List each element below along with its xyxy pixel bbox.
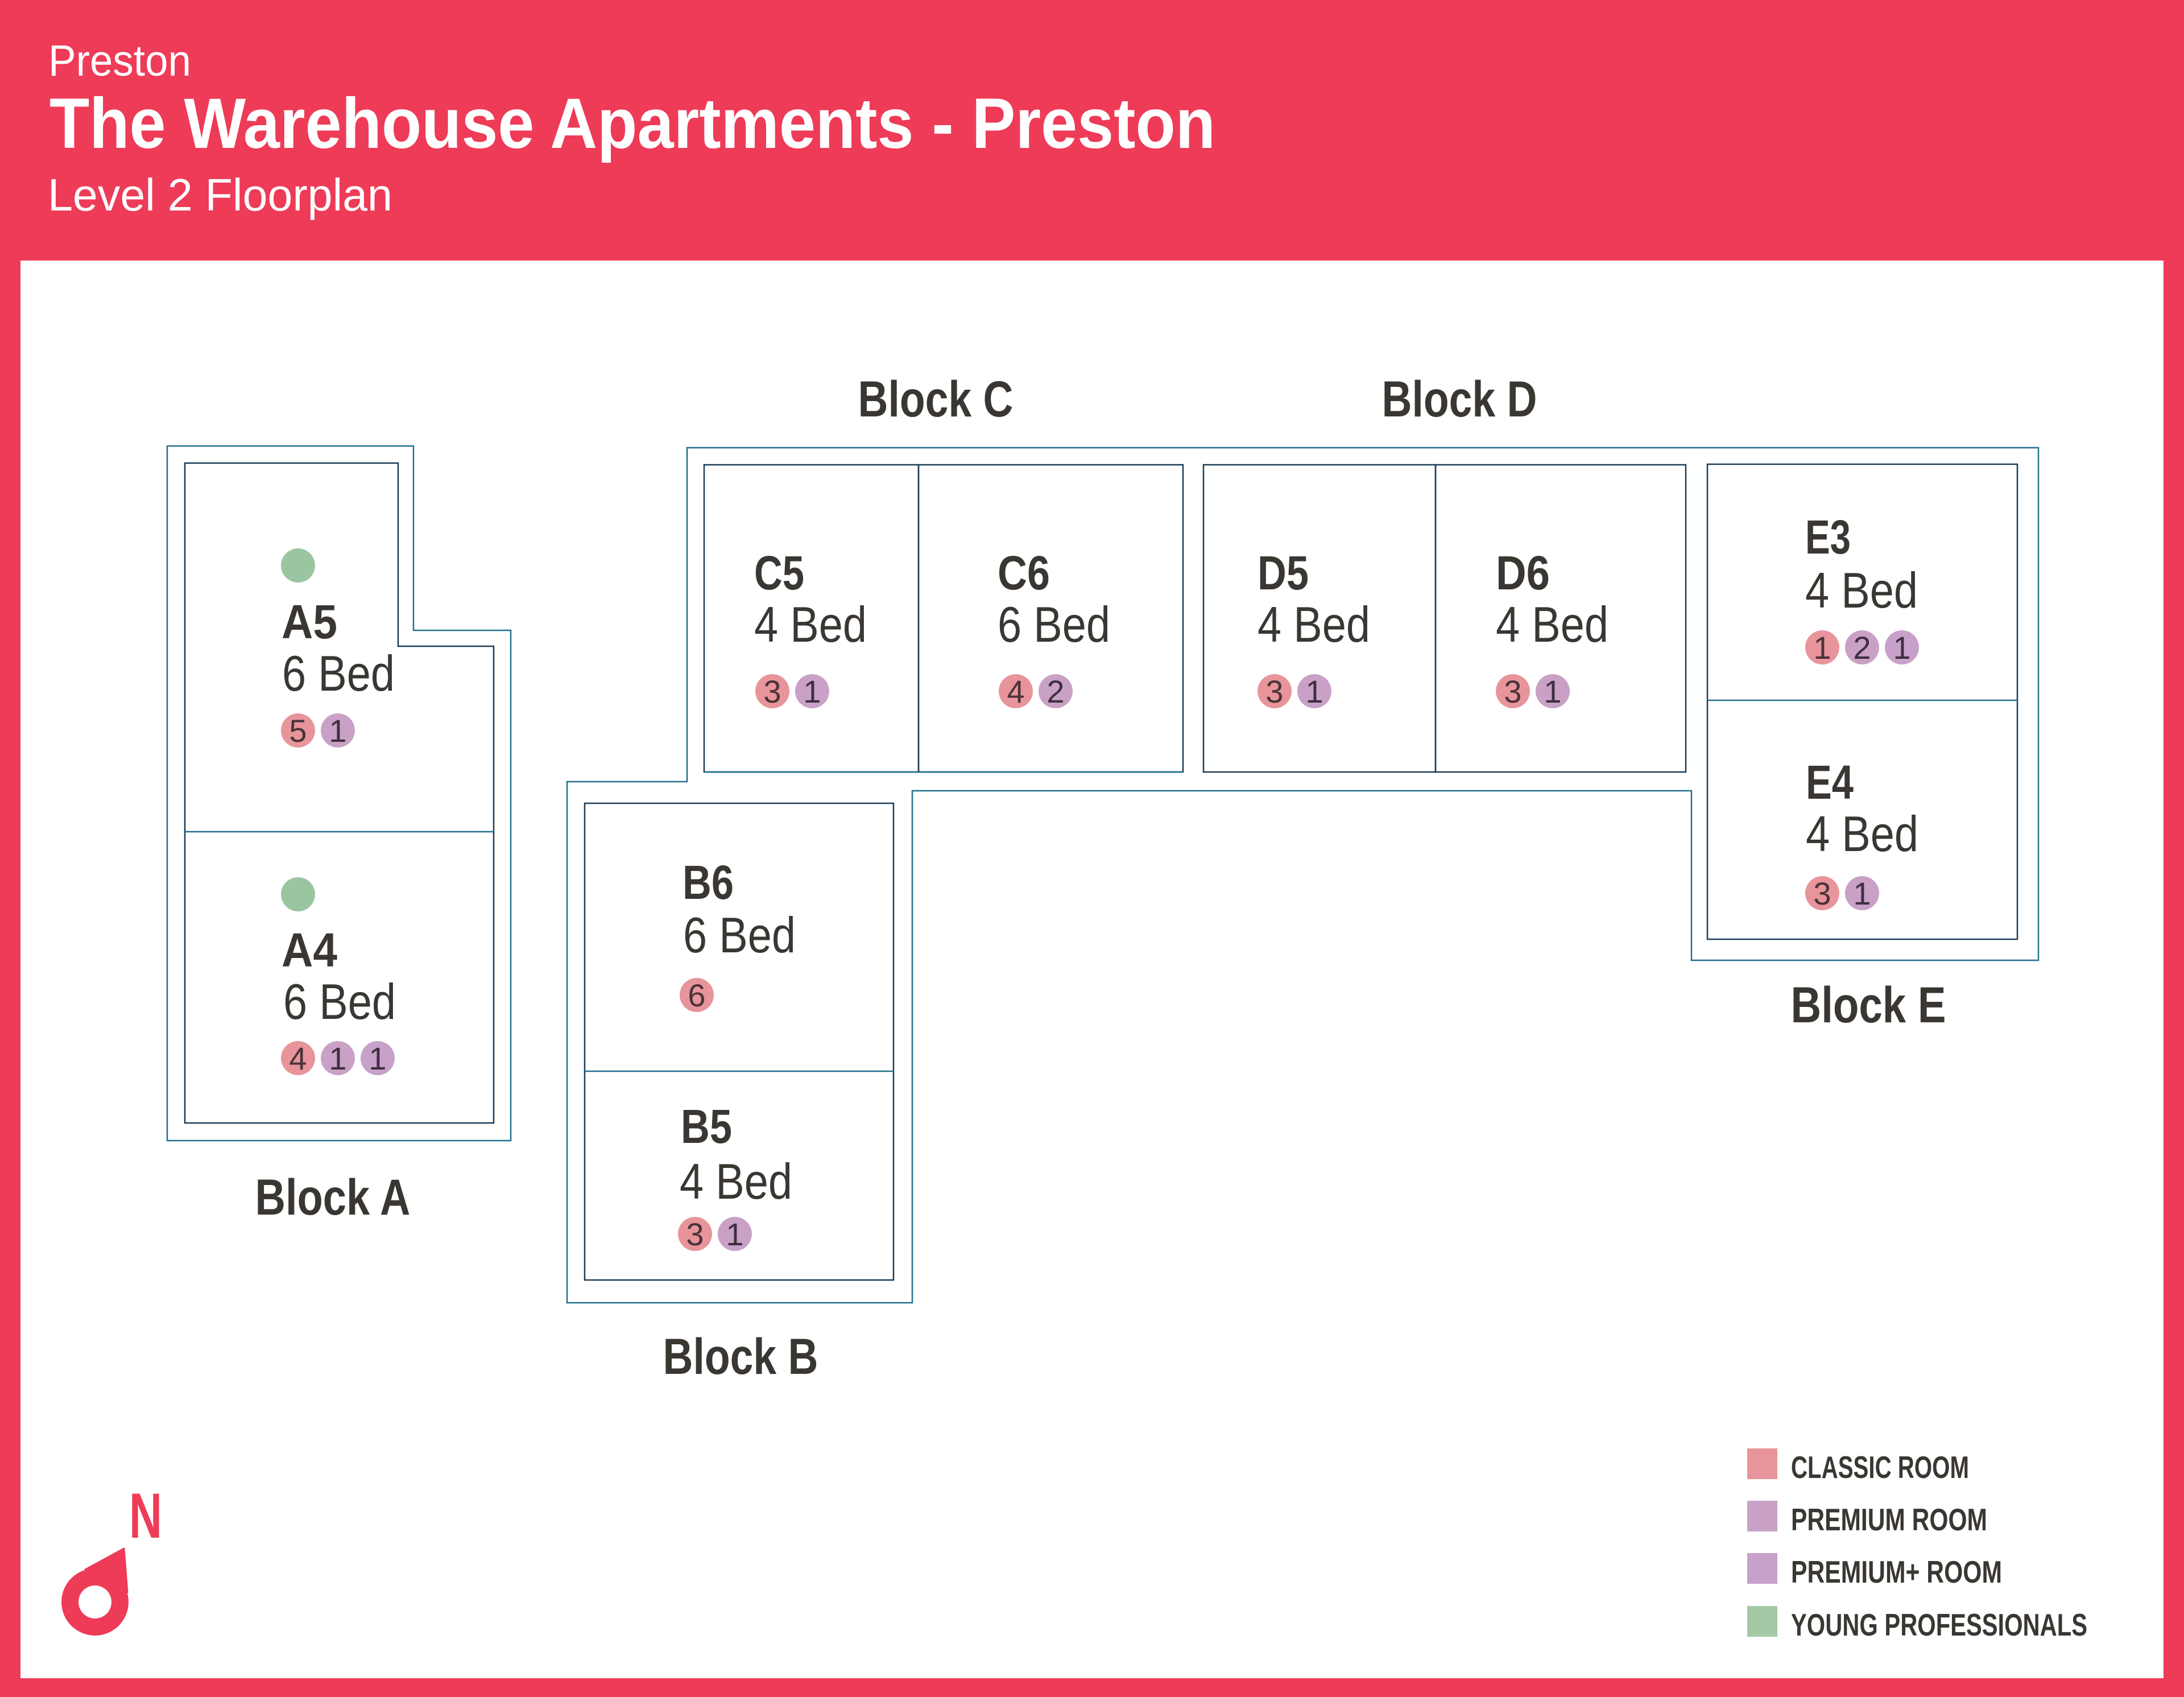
svg-text:1: 1 [1853,876,1871,911]
svg-text:4: 4 [1007,674,1024,709]
svg-text:3: 3 [686,1216,704,1252]
svg-text:6 Bed: 6 Bed [282,645,395,701]
svg-text:YOUNG PROFESSIONALS: YOUNG PROFESSIONALS [1791,1607,2087,1642]
svg-text:B5: B5 [681,1100,732,1153]
svg-text:D5: D5 [1258,546,1309,600]
svg-text:2: 2 [1046,674,1064,709]
svg-text:4: 4 [289,1041,307,1076]
svg-text:Level 2 Floorplan: Level 2 Floorplan [48,170,392,220]
svg-text:1: 1 [329,1041,346,1076]
svg-text:1: 1 [726,1216,743,1252]
svg-text:CLASSIC ROOM: CLASSIC ROOM [1791,1450,1969,1485]
svg-text:Block B: Block B [663,1328,818,1385]
svg-text:5: 5 [289,713,307,749]
svg-text:1: 1 [1893,630,1910,666]
svg-text:6 Bed: 6 Bed [283,973,396,1030]
svg-text:3: 3 [1265,674,1283,709]
svg-text:PREMIUM+ ROOM: PREMIUM+ ROOM [1791,1554,2002,1589]
svg-text:A5: A5 [282,595,337,649]
svg-text:N: N [129,1480,162,1551]
svg-text:Block D: Block D [1382,370,1537,427]
svg-text:3: 3 [1813,876,1831,911]
svg-text:PREMIUM ROOM: PREMIUM ROOM [1791,1502,1987,1537]
svg-text:1: 1 [369,1041,386,1076]
svg-text:6 Bed: 6 Bed [683,907,796,963]
svg-text:1: 1 [803,674,821,709]
svg-text:Preston: Preston [48,36,191,85]
svg-text:C6: C6 [998,546,1050,600]
svg-text:A4: A4 [282,923,337,977]
svg-text:The Warehouse Apartments - Pre: The Warehouse Apartments - Preston [49,84,1215,163]
svg-text:Block A: Block A [255,1169,411,1225]
svg-text:4 Bed: 4 Bed [754,596,867,653]
svg-text:B6: B6 [682,856,734,909]
svg-text:6: 6 [688,977,705,1013]
svg-text:1: 1 [1544,674,1561,709]
svg-text:Block C: Block C [858,370,1014,427]
svg-text:4 Bed: 4 Bed [680,1153,792,1209]
svg-text:6 Bed: 6 Bed [998,596,1110,653]
svg-text:2: 2 [1853,630,1871,666]
svg-text:Block E: Block E [1791,976,1946,1033]
svg-text:1: 1 [1305,674,1323,709]
svg-text:E3: E3 [1805,510,1851,564]
svg-text:3: 3 [1504,674,1521,709]
svg-text:4 Bed: 4 Bed [1496,596,1608,653]
svg-text:3: 3 [763,674,781,709]
svg-text:C5: C5 [754,546,804,600]
svg-text:1: 1 [329,713,346,749]
svg-text:4 Bed: 4 Bed [1806,806,1918,862]
svg-text:E4: E4 [1806,755,1854,809]
svg-text:4 Bed: 4 Bed [1258,596,1370,653]
svg-text:D6: D6 [1496,546,1550,600]
svg-text:1: 1 [1813,630,1831,666]
svg-text:4 Bed: 4 Bed [1805,562,1918,618]
